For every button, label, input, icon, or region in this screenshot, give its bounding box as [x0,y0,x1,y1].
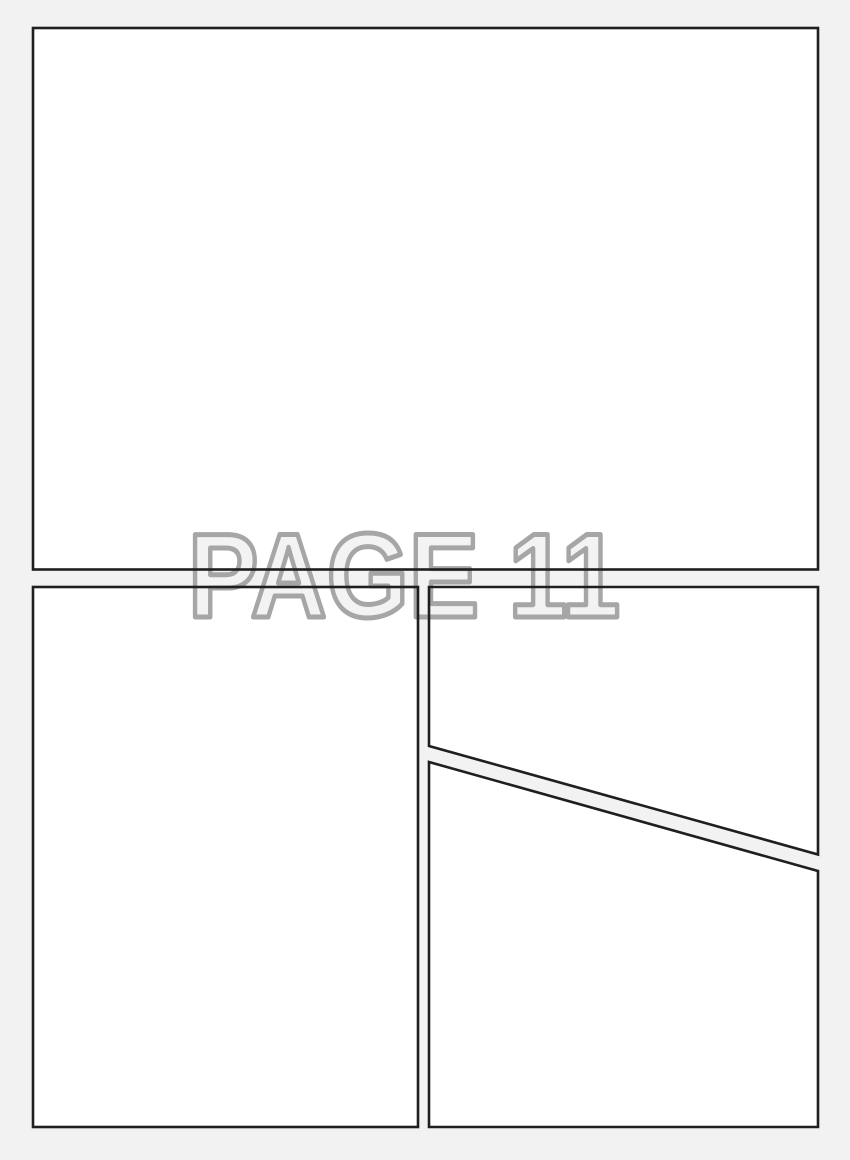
page-number-watermark: PAGE 11 [188,509,620,643]
panel-bottom-left-fill [33,587,418,1127]
panel-top-fill [33,28,818,570]
page-canvas: PAGE 11 [0,0,850,1160]
comic-page-sheet: PAGE 11 [0,0,850,1160]
